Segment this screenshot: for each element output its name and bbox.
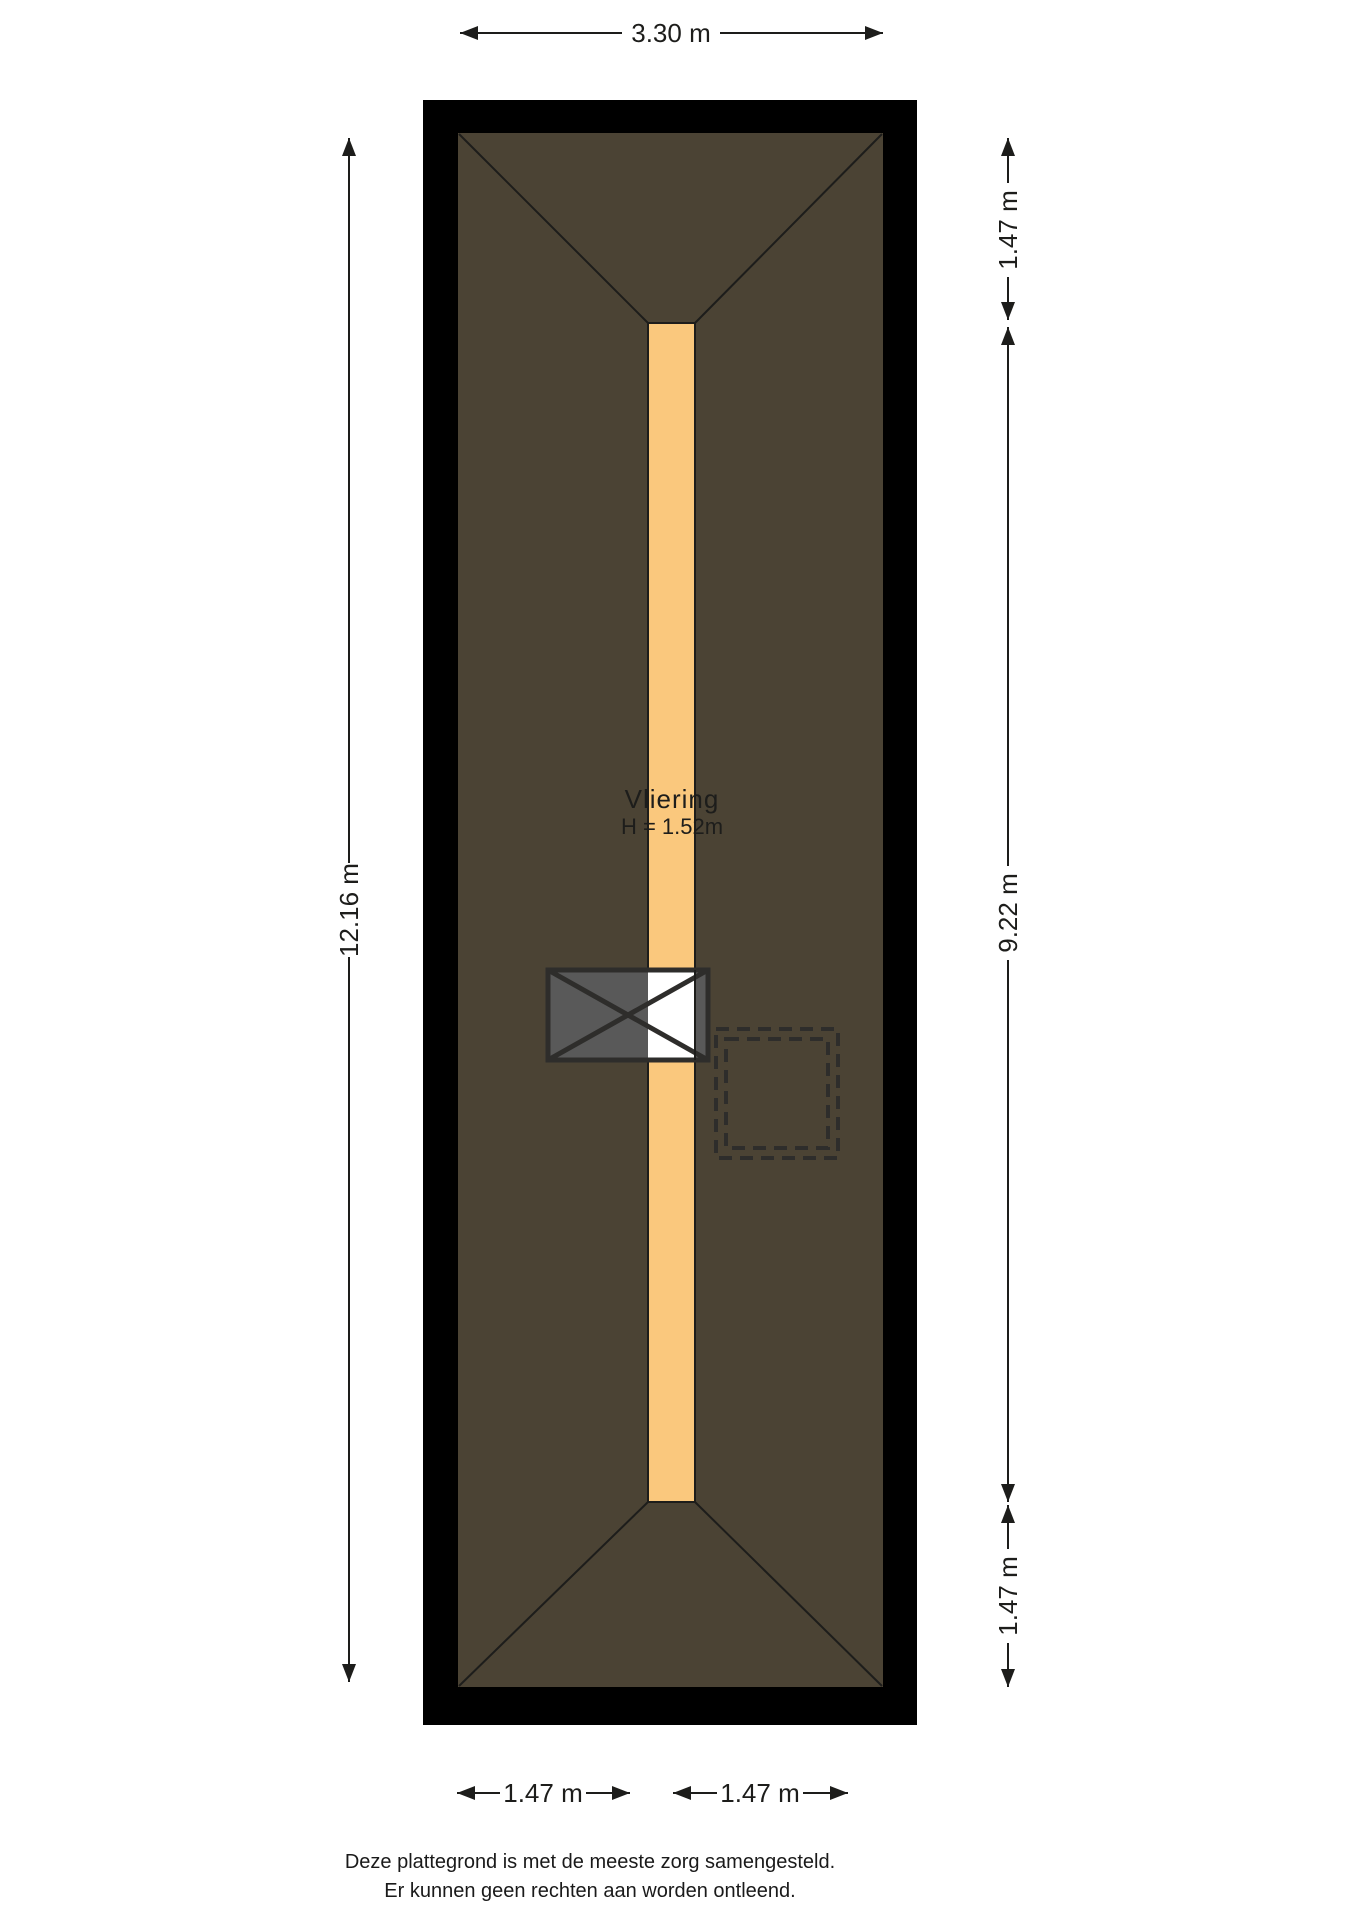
- ridge-floor-strip: [648, 323, 695, 1502]
- room-height-label: H = 1.52m: [621, 814, 723, 839]
- arrowhead-up: [1001, 138, 1015, 156]
- dimension-left-height: 12.16 m: [334, 138, 364, 1682]
- dimension-label-right-bottom: 1.47 m: [993, 1556, 1023, 1636]
- arrowhead-right: [612, 1786, 630, 1800]
- dimension-bottom-right: 1.47 m: [673, 1778, 848, 1808]
- footer-disclaimer-line1: Deze plattegrond is met de meeste zorg s…: [345, 1851, 835, 1873]
- arrowhead-left: [460, 26, 478, 40]
- arrowhead-right: [830, 1786, 848, 1800]
- room-name-label: Vliering: [625, 784, 720, 814]
- arrowhead-down: [1001, 1669, 1015, 1687]
- dimension-top-width: 3.30 m: [460, 18, 883, 48]
- dimension-bottom-left: 1.47 m: [457, 1778, 630, 1808]
- arrowhead-up: [342, 138, 356, 156]
- arrowhead-left: [673, 1786, 691, 1800]
- footer-disclaimer: Deze plattegrond is met de meeste zorg s…: [345, 1851, 835, 1902]
- floor-plan-drawing: 3.30 m Vliering H = 1.52m: [0, 0, 1358, 1920]
- dimension-label-bottom-left: 1.47 m: [503, 1778, 583, 1808]
- dimension-right-bottom: 1.47 m: [993, 1505, 1023, 1687]
- dimension-label-right-top: 1.47 m: [993, 190, 1023, 270]
- arrowhead-down: [1001, 1484, 1015, 1502]
- arrowhead-right: [865, 26, 883, 40]
- arrowhead-up: [1001, 327, 1015, 345]
- arrowhead-left: [457, 1786, 475, 1800]
- dimension-label-top-width: 3.30 m: [631, 18, 711, 48]
- stair-hatch: [548, 970, 708, 1060]
- dimension-label-bottom-right: 1.47 m: [720, 1778, 800, 1808]
- dimension-right-top: 1.47 m: [993, 138, 1023, 320]
- dimension-right-middle: 9.22 m: [993, 327, 1023, 1502]
- footer-disclaimer-line2: Er kunnen geen rechten aan worden ontlee…: [384, 1880, 795, 1902]
- arrowhead-down: [1001, 302, 1015, 320]
- arrowhead-down: [342, 1664, 356, 1682]
- dimension-label-left-height: 12.16 m: [334, 863, 364, 957]
- dimension-label-right-middle: 9.22 m: [993, 873, 1023, 953]
- arrowhead-up: [1001, 1505, 1015, 1523]
- floor-plan-page: 3.30 m Vliering H = 1.52m: [0, 0, 1358, 1920]
